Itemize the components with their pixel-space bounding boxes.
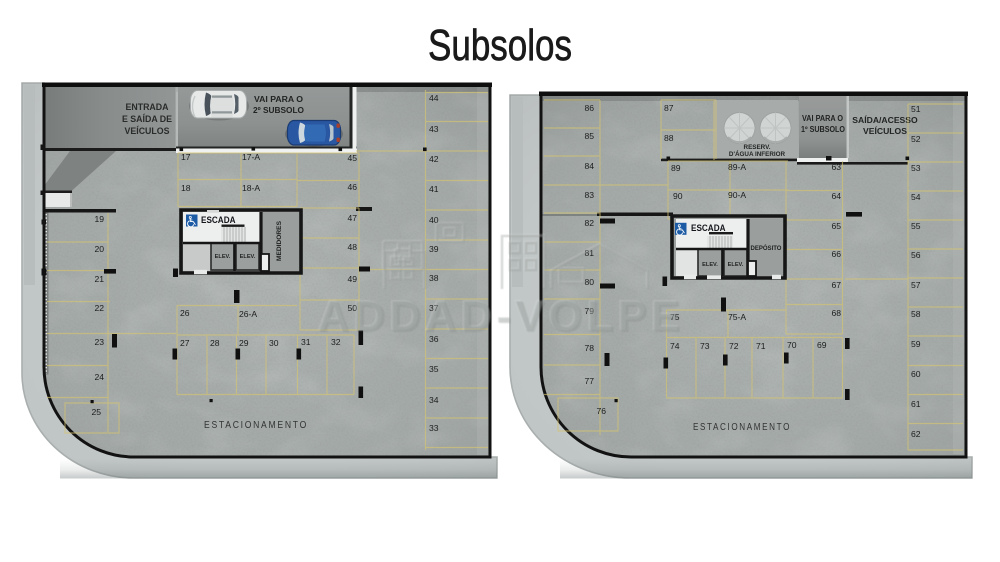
- svg-text:1º SUBSOLO: 1º SUBSOLO: [801, 125, 845, 134]
- svg-text:VEÍCULOS: VEÍCULOS: [125, 126, 170, 136]
- svg-text:64: 64: [831, 191, 841, 201]
- svg-text:ELEV.: ELEV.: [728, 262, 744, 268]
- svg-text:ENTRADA: ENTRADA: [125, 102, 169, 112]
- svg-text:46: 46: [347, 182, 357, 192]
- svg-text:82: 82: [584, 218, 594, 228]
- svg-text:VEÍCULOS: VEÍCULOS: [863, 126, 907, 136]
- svg-text:45: 45: [347, 153, 357, 163]
- svg-text:ESCADA: ESCADA: [201, 215, 236, 225]
- svg-text:69: 69: [817, 340, 827, 350]
- svg-text:68: 68: [831, 308, 841, 318]
- svg-text:51: 51: [911, 104, 921, 114]
- svg-text:70: 70: [787, 340, 797, 350]
- svg-text:85: 85: [584, 131, 594, 141]
- svg-text:48: 48: [347, 242, 357, 252]
- svg-text:2º SUBSOLO: 2º SUBSOLO: [253, 105, 304, 115]
- svg-text:25: 25: [91, 407, 101, 417]
- svg-text:60: 60: [911, 369, 921, 379]
- svg-text:ELEV.: ELEV.: [702, 262, 718, 268]
- svg-text:26-A: 26-A: [239, 309, 257, 319]
- svg-text:55: 55: [911, 221, 921, 231]
- svg-text:MEDIDORES: MEDIDORES: [276, 220, 283, 261]
- svg-text:88: 88: [664, 133, 674, 143]
- svg-text:42: 42: [429, 154, 439, 164]
- svg-text:53: 53: [911, 163, 921, 173]
- svg-text:18: 18: [181, 183, 191, 193]
- svg-text:24: 24: [94, 372, 104, 382]
- svg-text:28: 28: [210, 338, 220, 348]
- svg-text:58: 58: [911, 309, 921, 319]
- svg-text:76: 76: [596, 406, 606, 416]
- svg-text:90: 90: [673, 191, 683, 201]
- svg-text:72: 72: [729, 341, 739, 351]
- svg-text:33: 33: [429, 423, 439, 433]
- svg-text:52: 52: [911, 134, 921, 144]
- svg-text:59: 59: [911, 339, 921, 349]
- svg-text:71: 71: [756, 341, 766, 351]
- svg-text:75-A: 75-A: [728, 312, 746, 322]
- svg-text:47: 47: [347, 213, 357, 223]
- svg-text:ADDAD-VOLPE: ADDAD-VOLPE: [318, 292, 685, 341]
- svg-text:65: 65: [831, 221, 841, 231]
- svg-text:17-A: 17-A: [242, 152, 260, 162]
- svg-text:34: 34: [429, 395, 439, 405]
- svg-text:84: 84: [584, 161, 594, 171]
- svg-text:41: 41: [429, 184, 439, 194]
- svg-text:61: 61: [911, 399, 921, 409]
- svg-text:ESTACIONAMENTO: ESTACIONAMENTO: [693, 422, 791, 433]
- svg-text:ELEV.: ELEV.: [215, 254, 231, 260]
- svg-text:62: 62: [911, 429, 921, 439]
- svg-text:26: 26: [180, 308, 190, 318]
- svg-text:57: 57: [911, 280, 921, 290]
- svg-text:23: 23: [94, 337, 104, 347]
- svg-text:VAI PARA O: VAI PARA O: [802, 114, 843, 123]
- svg-text:31: 31: [301, 337, 311, 347]
- svg-text:RESERV.: RESERV.: [744, 144, 771, 151]
- svg-text:18-A: 18-A: [242, 183, 260, 193]
- svg-text:VAI PARA O: VAI PARA O: [254, 94, 303, 104]
- svg-text:89-A: 89-A: [728, 162, 746, 172]
- svg-text:83: 83: [584, 190, 594, 200]
- svg-text:19: 19: [94, 214, 104, 224]
- svg-text:29: 29: [239, 338, 249, 348]
- svg-text:73: 73: [700, 341, 710, 351]
- svg-text:ESCADA: ESCADA: [691, 223, 726, 233]
- svg-text:D'ÁGUA INFERIOR: D'ÁGUA INFERIOR: [729, 149, 786, 158]
- svg-text:ESTACIONAMENTO: ESTACIONAMENTO: [204, 420, 308, 431]
- svg-text:89: 89: [671, 163, 681, 173]
- svg-text:27: 27: [180, 338, 190, 348]
- svg-text:77: 77: [584, 376, 594, 386]
- svg-text:Subsolos: Subsolos: [428, 21, 572, 70]
- svg-text:35: 35: [429, 364, 439, 374]
- svg-text:DEPÓSITO: DEPÓSITO: [751, 243, 782, 252]
- svg-text:44: 44: [429, 93, 439, 103]
- svg-text:56: 56: [911, 250, 921, 260]
- svg-text:80: 80: [584, 277, 594, 287]
- svg-text:63: 63: [831, 162, 841, 172]
- svg-text:38: 38: [429, 273, 439, 283]
- svg-text:54: 54: [911, 192, 921, 202]
- svg-text:66: 66: [831, 249, 841, 259]
- svg-text:43: 43: [429, 124, 439, 134]
- svg-text:87: 87: [664, 103, 674, 113]
- svg-text:ELEV.: ELEV.: [240, 254, 256, 260]
- svg-text:49: 49: [347, 274, 357, 284]
- svg-text:67: 67: [831, 280, 841, 290]
- svg-text:21: 21: [94, 274, 104, 284]
- svg-text:86: 86: [584, 103, 594, 113]
- svg-text:30: 30: [269, 338, 279, 348]
- svg-text:22: 22: [94, 303, 104, 313]
- svg-text:74: 74: [670, 341, 680, 351]
- svg-text:E SAÍDA DE: E SAÍDA DE: [122, 114, 172, 124]
- svg-text:90-A: 90-A: [728, 190, 746, 200]
- svg-text:17: 17: [181, 152, 191, 162]
- svg-text:39: 39: [429, 244, 439, 254]
- svg-text:78: 78: [584, 343, 594, 353]
- svg-text:20: 20: [94, 244, 104, 254]
